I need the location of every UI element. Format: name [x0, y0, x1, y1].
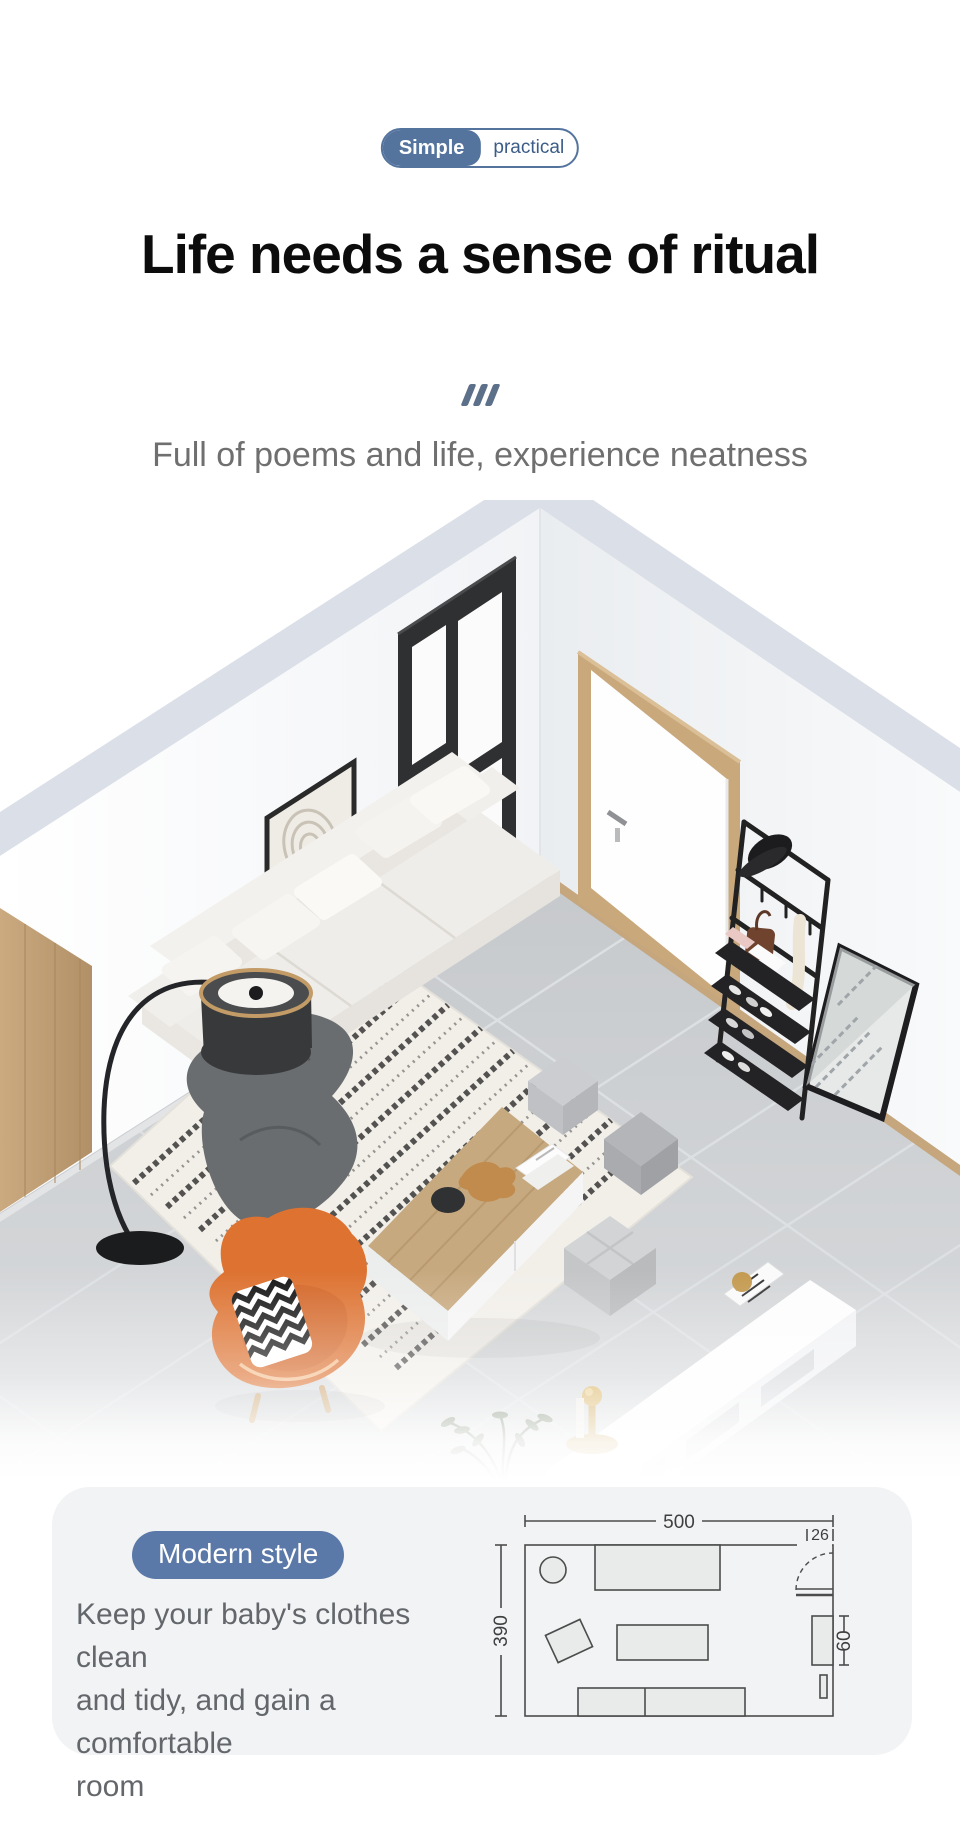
plan-table: [617, 1625, 708, 1660]
style-tag: Modern style: [132, 1531, 344, 1579]
plan-width-label: 500: [663, 1512, 695, 1533]
floor-plan-diagram: 500 26 390 60: [490, 1493, 890, 1751]
plan-sofa: [595, 1545, 720, 1590]
card-description: Keep your baby's clothes clean and tidy,…: [76, 1593, 486, 1808]
badge-secondary-label: practical: [480, 130, 577, 166]
plan-door-label: 26: [811, 1527, 829, 1544]
fade-overlay: [0, 500, 960, 1500]
page-subtitle: Full of poems and life, experience neatn…: [0, 436, 960, 475]
plan-door: [796, 1545, 833, 1595]
info-card: Modern style Keep your baby's clothes cl…: [52, 1487, 912, 1755]
plan-depth-label: 390: [491, 1615, 512, 1647]
description-line: room: [76, 1765, 486, 1808]
plan-side-unit: [812, 1616, 833, 1665]
plan-side-label: 60: [834, 1630, 855, 1651]
description-line: Keep your baby's clothes clean: [76, 1593, 486, 1679]
plan-cabinet: [578, 1688, 745, 1716]
room-illustration: [0, 500, 960, 1500]
plan-chair: [545, 1619, 592, 1662]
plan-small-unit: [820, 1675, 827, 1698]
style-badge: Simple practical: [381, 128, 579, 168]
triple-slash-icon: [0, 384, 960, 406]
badge-primary-label: Simple: [383, 130, 481, 166]
promo-page: Simple practical Life needs a sense of r…: [0, 0, 960, 1822]
description-line: and tidy, and gain a comfortable: [76, 1679, 486, 1765]
plan-lamp: [540, 1557, 566, 1583]
page-title: Life needs a sense of ritual: [0, 222, 960, 286]
